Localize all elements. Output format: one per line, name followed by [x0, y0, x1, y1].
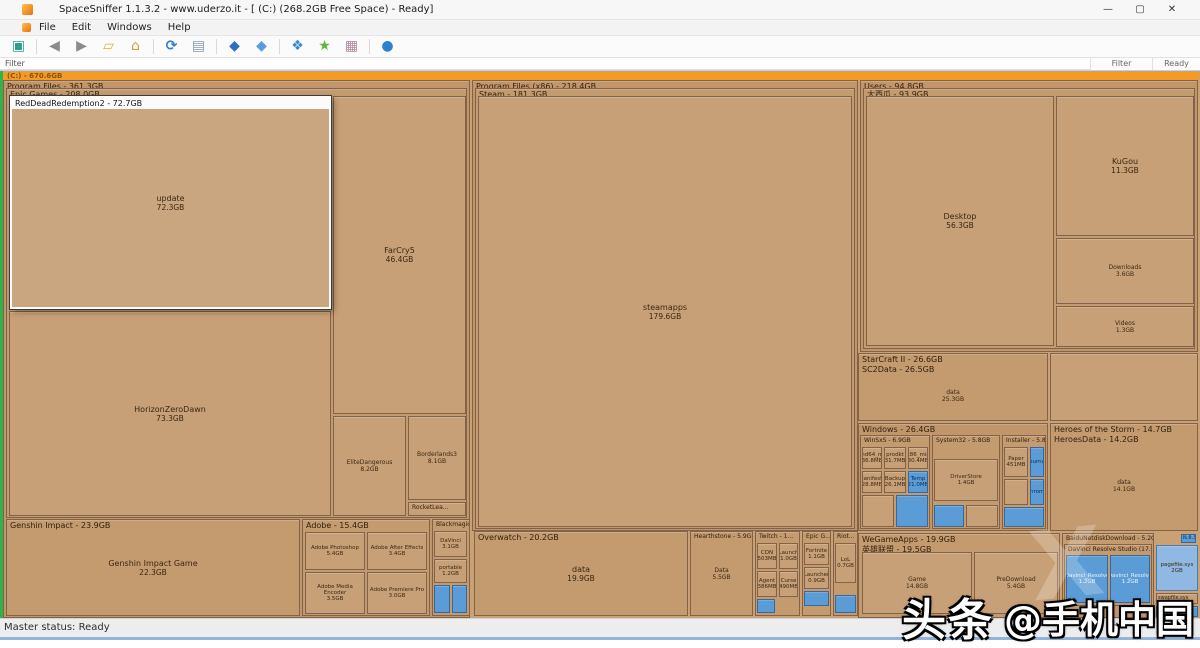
treemap-box-installer-cell[interactable] [1004, 479, 1028, 505]
about-button[interactable]: ● [375, 37, 400, 56]
box-label: amd64_mic36.8MB [863, 448, 881, 468]
treemap-box-farcry[interactable]: FarCry5 46.4GB [333, 96, 466, 414]
back-icon: ◀ [49, 37, 60, 56]
box-label: DriverStore1.4GB [935, 460, 997, 500]
class-view-button[interactable]: ❖ [285, 37, 310, 56]
box-label: Agent386MB [758, 572, 776, 596]
menu-windows[interactable]: Windows [99, 20, 160, 36]
toolbar-separator [279, 39, 280, 54]
export-icon: ⌂ [131, 37, 140, 56]
treemap-box-twitch-cell[interactable]: Curse490MB [779, 571, 798, 597]
treemap-box-driverstore[interactable]: DriverStore1.4GB [934, 459, 998, 501]
treemap-box-adobe-photoshop[interactable]: Adobe Photoshop5.4GB [305, 532, 365, 570]
filter-label[interactable]: Filter [5, 59, 25, 68]
box-header: Epic G... [803, 532, 830, 540]
box-label: HorizonZeroDawn 73.3GB [10, 312, 330, 515]
box-label: Journal [1031, 448, 1043, 476]
treemap-box-overwatch[interactable]: Overwatch - 20.2GB data 19.9GB [474, 531, 688, 616]
treemap-box-epic-cell[interactable]: Fortnite1.1GB [804, 543, 829, 565]
treemap-box-winsxs-cell-blue[interactable]: Temp21.0MB [908, 471, 928, 493]
treemap-box-starcraft[interactable]: StarCraft II - 26.6GB SC2Data - 26.5GB d… [858, 353, 1048, 421]
ready-status-panel: Ready [1152, 58, 1200, 70]
box-label: data 19.9GB [475, 532, 687, 615]
sphere-icon: ● [381, 37, 393, 56]
toolbar: ▣ ◀ ▶ ▱ ⌂ ⟳ ▤ ◆ ◆ ❖ ★ ▦ ● [0, 36, 1200, 58]
treemap-box-kugou[interactable]: KuGou 11.3GB [1056, 96, 1194, 236]
box-header: Riot... [834, 532, 857, 540]
treemap-box-twitch-cell[interactable]: Launch1.0GB [779, 543, 798, 569]
star-icon: ★ [318, 37, 331, 56]
treemap-box-installer-cell-blue[interactable]: Chrome [1030, 479, 1044, 505]
treemap-box-winsxs-cell[interactable] [862, 495, 894, 527]
window-title: SpaceSniffer 1.1.3.2 - www.uderzo.it - [… [59, 4, 433, 15]
treemap-box-horizon[interactable]: HorizonZeroDawn 73.3GB [9, 311, 331, 516]
toolbar-separator [369, 39, 370, 54]
spacesniffer-window: SpaceSniffer 1.1.3.2 - www.uderzo.it - [… [0, 0, 1200, 640]
watermark-handle: @手机中国 [1004, 589, 1194, 644]
treemap-box-hearthstone[interactable]: Hearthstone - 5.9GB Data 5.5GB [690, 531, 753, 616]
box-label: Data 5.5GB [691, 532, 752, 615]
box-label: Adobe Media Encoder3.5GB [306, 573, 364, 613]
treemap-box-winsxs-cell[interactable]: x86_mic30.4MB [908, 447, 928, 469]
box-label: Adobe After Effects3.4GB [368, 533, 426, 569]
box-label: Paper451MB [1005, 448, 1027, 476]
treemap-box-rdr2-selected[interactable]: RedDeadRedemption2 - 72.7GB update 72.3G… [10, 96, 331, 309]
treemap-box-twitch-cell[interactable]: Agent386MB [757, 571, 777, 597]
treemap-box-blue-cell[interactable] [896, 495, 928, 527]
box-label: portable1.2GB [435, 560, 466, 582]
treemap-box-blue-cell[interactable] [934, 505, 964, 527]
treemap-box-tiny-blue[interactable]: N.8.3.2 [1181, 534, 1196, 543]
maximize-button[interactable]: ▢ [1134, 0, 1146, 20]
treemap-box-winsxs-cell[interactable]: Backup26.1MB [884, 471, 906, 493]
box-label: Genshin Impact Game 22.3GB [7, 520, 299, 615]
treemap-box-davinci-small[interactable]: DaVinci3.1GB [434, 531, 467, 557]
treemap-box-winsxs-cell[interactable]: Manifests28.8MB [862, 471, 882, 493]
treemap-view: (C:) - 670.6GB Program Files - 361.3GB E… [0, 70, 1200, 618]
treemap-box-blue-cell[interactable] [757, 599, 775, 613]
box-label: Manifests28.8MB [863, 472, 881, 492]
box-label: Launch1.0GB [780, 544, 797, 568]
close-button[interactable]: ✕ [1166, 0, 1178, 20]
treemap-box-installer-cell[interactable]: Paper451MB [1004, 447, 1028, 477]
app-logo-icon [22, 4, 33, 15]
treemap-box-videos[interactable]: Videos 1.3GB [1056, 306, 1194, 347]
box-label: CDN503MB [758, 544, 776, 568]
filter-status-panel: Filter [1090, 58, 1152, 70]
open-folder-icon: ▱ [103, 37, 114, 56]
box-label: prodkt31.7MB [885, 448, 905, 468]
drive-header[interactable]: (C:) - 670.6GB [3, 72, 1199, 80]
filter-cube-button[interactable]: ◆ [222, 37, 247, 56]
box-header: N.8.3.2 [1182, 535, 1195, 541]
box-label: Temp21.0MB [909, 472, 927, 492]
box-label: Backup26.1MB [885, 472, 905, 492]
window-controls: — ▢ ✕ [1102, 0, 1178, 20]
box-label: FarCry5 46.4GB [334, 97, 465, 413]
box-label: Videos 1.3GB [1057, 307, 1193, 346]
title-bar: SpaceSniffer 1.1.3.2 - www.uderzo.it - [… [0, 0, 1200, 20]
box-header: Windows - 26.4GB [859, 424, 1047, 434]
box-header: Blackmagic De... [433, 520, 469, 528]
refresh-button[interactable]: ⟳ [159, 37, 184, 56]
box-header: Twitch - 1... [756, 532, 799, 540]
watermark-brand: 头条 [902, 584, 994, 648]
box-header: StarCraft II - 26.6GB [859, 354, 1047, 364]
media-cards-button[interactable]: ▦ [339, 37, 364, 56]
toolbar-separator [216, 39, 217, 54]
menu-bar: File Edit Windows Help [0, 20, 1200, 36]
treemap-box-winsxs-cell[interactable]: amd64_mic36.8MB [862, 447, 882, 469]
filter-cube-button-2[interactable]: ◆ [249, 37, 274, 56]
treemap-box-blue-cell[interactable] [434, 585, 450, 613]
menu-file[interactable]: File [31, 20, 64, 36]
treemap-box-portable[interactable]: portable1.2GB [434, 559, 467, 583]
box-label: Chrome [1031, 480, 1043, 504]
refresh-icon: ⟳ [166, 37, 178, 56]
new-view-button[interactable]: ▣ [6, 37, 31, 56]
menu-app-icon [22, 23, 31, 32]
cube-icon: ◆ [256, 37, 267, 56]
treemap-box-winsxs-cell[interactable]: prodkt31.7MB [884, 447, 906, 469]
forward-button[interactable]: ▶ [69, 37, 94, 56]
rescan-document-icon: ▤ [192, 37, 205, 56]
box-label: Borderlands3 8.1GB [409, 417, 465, 499]
treemap-box-installer-cell-blue[interactable]: Journal [1030, 447, 1044, 477]
toolbar-separator [153, 39, 154, 54]
treemap-box-riot-cell[interactable]: LoL0.7GB [835, 543, 856, 583]
box-label: LoL0.7GB [836, 544, 855, 582]
treemap-box-desktop[interactable]: Desktop 56.3GB [866, 96, 1054, 346]
cubes-icon: ❖ [291, 37, 304, 56]
treemap-box-blue-cell[interactable] [804, 591, 829, 606]
box-label: update 72.3GB [12, 98, 329, 307]
treemap-box-epic-cell[interactable]: Launcher0.9GB [804, 567, 829, 589]
treemap-box-genshin[interactable]: Genshin Impact - 23.9GB Genshin Impact G… [6, 519, 300, 616]
treemap-box-downloads[interactable]: Downloads 3.6GB [1056, 238, 1194, 304]
box-header: Heroes of the Storm - 14.7GB [1051, 424, 1197, 434]
treemap-box-steamapps[interactable]: steamapps 179.6GB [478, 96, 852, 527]
treemap-box-twitch-cell[interactable]: CDN503MB [757, 543, 777, 569]
box-header: System32 - 5.8GB [933, 436, 999, 444]
box-label: Desktop 56.3GB [867, 97, 1053, 345]
box-label: data 25.3GB [859, 372, 1047, 420]
forward-icon: ▶ [76, 37, 87, 56]
treemap-box-rocket[interactable]: RocketLea... [408, 502, 466, 516]
treemap-box-adobe-premiere[interactable]: Adobe Premiere Pro3.0GB [367, 572, 427, 614]
new-view-icon: ▣ [12, 37, 25, 56]
rescan-button[interactable]: ▤ [186, 37, 211, 56]
export-button[interactable]: ⌂ [123, 37, 148, 56]
box-header: RocketLea... [409, 503, 465, 511]
cards-icon: ▦ [345, 37, 358, 56]
box-label: KuGou 11.3GB [1057, 97, 1193, 235]
back-button[interactable]: ◀ [42, 37, 67, 56]
menu-help[interactable]: Help [160, 20, 199, 36]
box-label: Fortnite1.1GB [805, 544, 828, 564]
treemap-box-elite[interactable]: EliteDangerous 8.2GB [333, 416, 406, 516]
watermark: 头条 @手机中国 [902, 584, 1194, 648]
open-folder-button[interactable]: ▱ [96, 37, 121, 56]
cube-icon: ◆ [229, 37, 240, 56]
box-label: Adobe Photoshop5.4GB [306, 533, 364, 569]
menu-edit[interactable]: Edit [64, 20, 99, 36]
box-label: Adobe Premiere Pro3.0GB [368, 573, 426, 613]
minimize-button[interactable]: — [1102, 0, 1114, 20]
box-label: Downloads 3.6GB [1057, 239, 1193, 303]
treemap-box-adobe-aftereffects[interactable]: Adobe After Effects3.4GB [367, 532, 427, 570]
treemap-box-borderlands[interactable]: Borderlands3 8.1GB [408, 416, 466, 500]
box-label: DaVinci3.1GB [435, 532, 466, 556]
treemap-box-system32-cell[interactable] [966, 505, 998, 527]
filter-bar: Filter Filter Ready [0, 58, 1200, 70]
star-tag-button[interactable]: ★ [312, 37, 337, 56]
box-label: Curse490MB [780, 572, 797, 596]
box-header: Installer - 5.8GB [1003, 436, 1045, 444]
box-label: x86_mic30.4MB [909, 448, 927, 468]
box-label: steamapps 179.6GB [479, 97, 851, 526]
box-header: WinSxS - 6.9GB [861, 436, 929, 444]
treemap-box-adobe-mediaencoder[interactable]: Adobe Media Encoder3.5GB [305, 572, 365, 614]
treemap-box-blue-cell[interactable] [835, 595, 856, 613]
toolbar-separator [36, 39, 37, 54]
box-label: Launcher0.9GB [805, 568, 828, 588]
box-header: Adobe - 15.4GB [303, 520, 429, 530]
treemap-box-misc[interactable] [1050, 353, 1198, 421]
treemap-box-blue-cell[interactable] [452, 585, 467, 613]
box-label: EliteDangerous 8.2GB [334, 417, 405, 515]
